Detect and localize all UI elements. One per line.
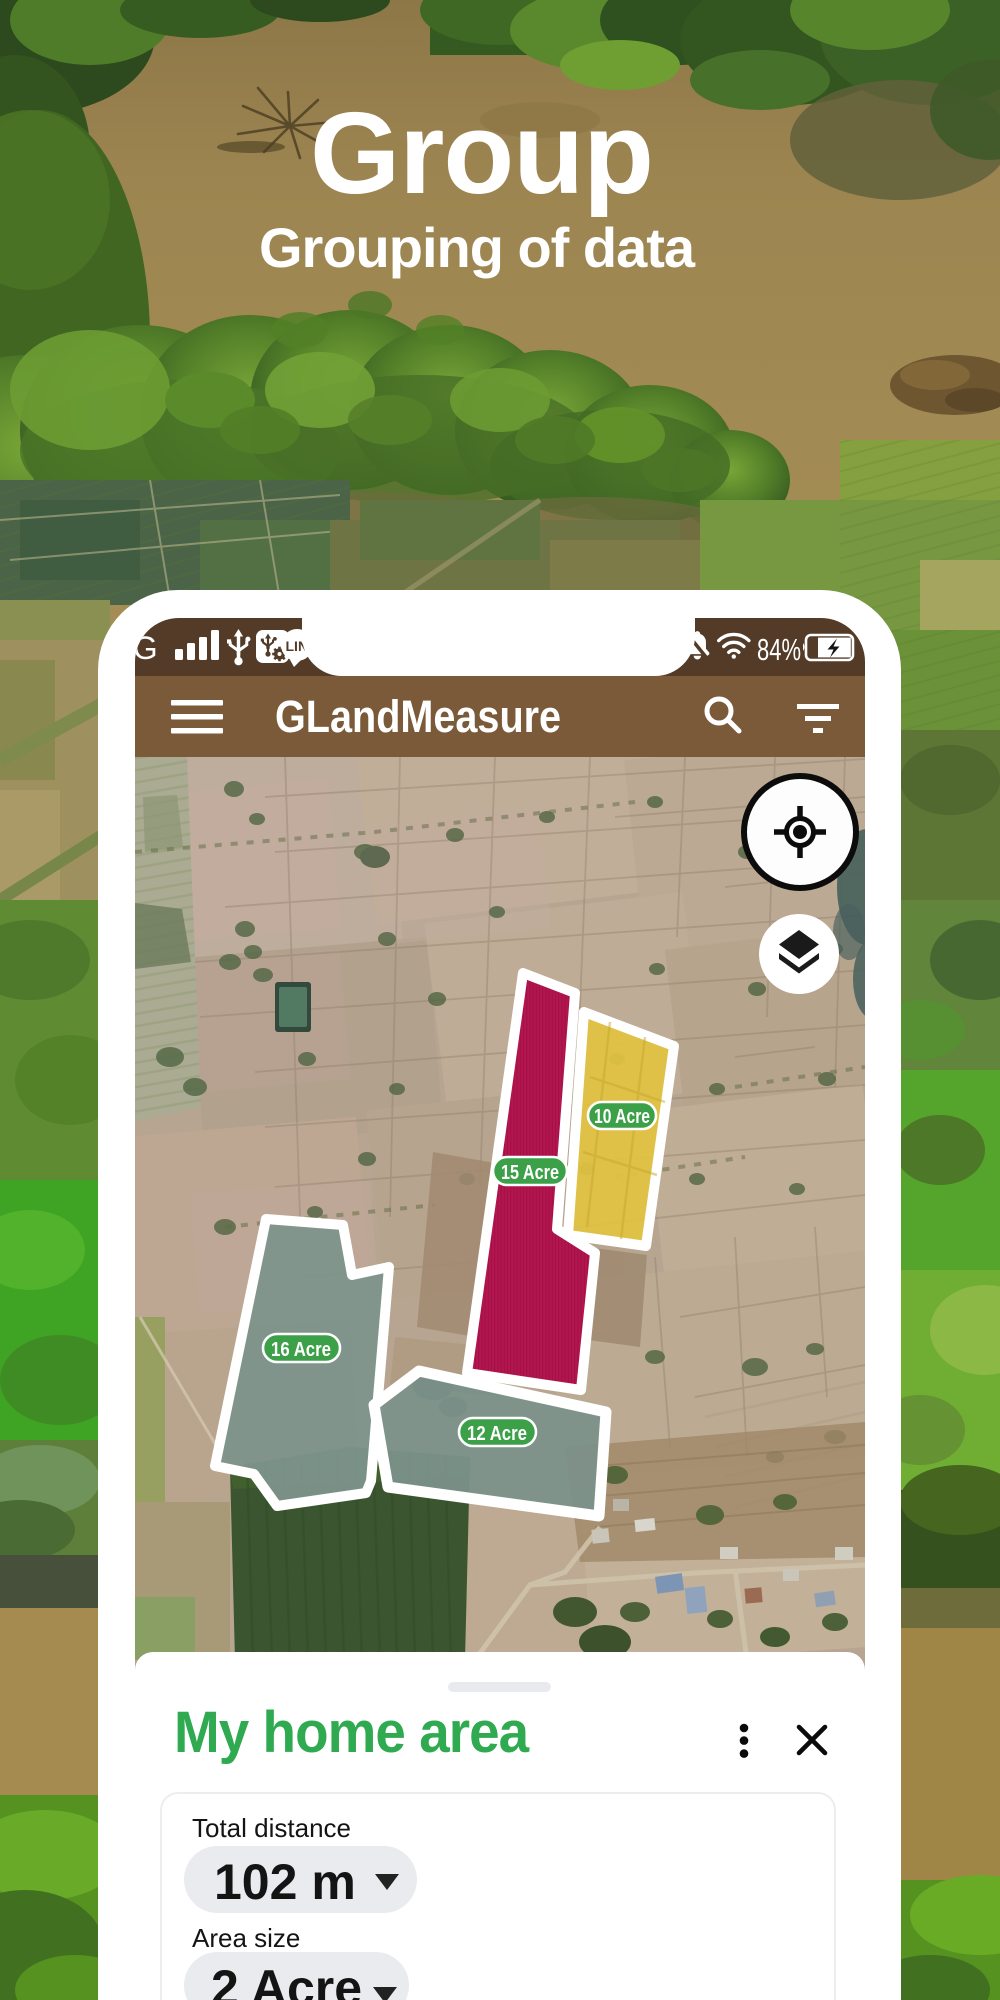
svg-text:16 Acre: 16 Acre xyxy=(271,1339,331,1361)
svg-text:15 Acre: 15 Acre xyxy=(501,1162,559,1184)
svg-text:4G: 4G xyxy=(135,630,158,666)
svg-text:84%: 84% xyxy=(757,632,801,667)
svg-text:10 Acre: 10 Acre xyxy=(594,1106,650,1128)
svg-text:12 Acre: 12 Acre xyxy=(467,1423,527,1445)
